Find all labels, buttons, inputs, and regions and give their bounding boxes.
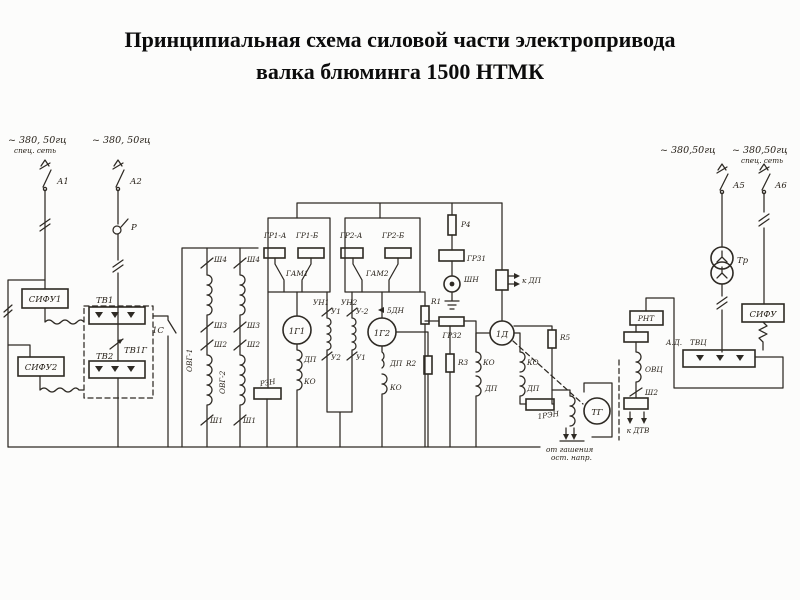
gam2-label: ГАМ2: [365, 269, 389, 278]
breaker-a6-label: А6: [774, 181, 787, 191]
tachogenerator-label: ТГ: [591, 408, 603, 418]
r4-resistor: [448, 215, 456, 235]
rnt-contact-box: [624, 332, 648, 342]
5dn-label: 5ДН: [387, 306, 405, 315]
quench-note-line2: ост. напр.: [551, 453, 592, 462]
motor-1d-label: 1Д: [496, 330, 509, 340]
contact-1s-label: 1С: [152, 326, 164, 336]
u2-tap-label: У-2: [356, 307, 369, 316]
k-dtv-label: к ДТВ: [627, 426, 650, 435]
gate-link-2: [40, 376, 84, 392]
tap-sh3-label: Ш3: [246, 321, 260, 330]
supply-label: ~ 380,50гц: [732, 145, 788, 156]
un1-label: УН1: [313, 298, 329, 307]
breaker-a2-label: А2: [129, 177, 142, 187]
dtv-tap-box: [624, 398, 648, 409]
sifu1-label: СИФУ1: [29, 295, 62, 305]
p-contact-label: Р: [130, 223, 137, 233]
tv1-label: ТВ1: [96, 296, 113, 306]
supply-label: ~ 380, 50гц: [8, 135, 67, 146]
ground-icon: [445, 292, 459, 309]
gr31-label: ГР31: [466, 254, 486, 263]
gr1b-contactor-box: [298, 248, 324, 258]
breaker-a5-icon: [717, 164, 728, 247]
tap-sh2-label: Ш2: [213, 340, 227, 349]
k-dp-box: [496, 270, 508, 290]
dp-winding-label: ДП: [389, 359, 403, 368]
ad-label: А.Д.: [665, 338, 682, 347]
schematic-canvas: ~ 380, 50гц спец. сеть ~ 380, 50гц А1 А2…: [0, 0, 800, 600]
breaker-a1-icon: [40, 160, 51, 289]
gr1b-label: ГР1-Б: [295, 231, 319, 240]
breaker-a6-icon: [759, 164, 770, 304]
r3-label: R3: [457, 358, 468, 367]
breaker-a2-icon: [113, 160, 128, 306]
tap-sh1-label: Ш1: [242, 416, 256, 425]
ovc-winding-label: ОВЦ: [645, 365, 663, 374]
tap-sh2-label: Ш2: [246, 340, 260, 349]
supply-sub-label: спец. сеть: [741, 156, 783, 165]
tvc-label: ТВЦ: [690, 338, 707, 347]
k-dp-label: к ДП: [522, 276, 542, 285]
gr2a-label: ГР2-А: [339, 231, 363, 240]
generator-1g2-label: 1Г2: [374, 329, 390, 339]
ko-winding-label: КО: [482, 358, 495, 367]
transformer-icon: [711, 247, 733, 350]
sifu3-gate-link: [759, 322, 767, 350]
breaker-a1-label: А1: [56, 177, 69, 187]
gr1a-contactor-box: [264, 248, 285, 258]
u1-tap-label: У1: [331, 307, 341, 316]
dp-winding-label: ДП: [526, 384, 540, 393]
r3-resistor: [446, 354, 454, 372]
gr32-label: ГР32: [441, 331, 461, 340]
gr1a-label: ГР1-А: [263, 231, 287, 240]
sifu3-label: СИФУ: [749, 310, 777, 320]
rnt-label: РНТ: [637, 314, 655, 323]
tv-converter-block: ТВ1 ТВ2 ТВ1Г 1С: [84, 296, 176, 447]
u1-bottom-tap-label: У1: [356, 353, 366, 362]
motor-circuit: Р4 ГР31 ШН к ДП R1 ГР32 R3 1Д КО ДП КО Д…: [420, 203, 619, 462]
tv1g-label: ТВ1Г: [124, 346, 147, 356]
gr2b-label: ГР2-Б: [381, 231, 405, 240]
supply-sub-label: спец. сеть: [14, 146, 56, 155]
gam1-label: ГАМ1: [285, 269, 308, 278]
sh2-tap-label: Ш2: [644, 388, 658, 397]
tap-sh3-label: Ш3: [213, 321, 227, 330]
ko-winding-label: КО: [389, 383, 402, 392]
supply-label: ~ 380, 50гц: [92, 135, 151, 146]
un2-label: УН2: [341, 298, 358, 307]
r1-label: R1: [430, 297, 441, 306]
r4-label: Р4: [460, 220, 471, 229]
left-supply-group: ~ 380, 50гц спец. сеть ~ 380, 50гц А1 А2…: [4, 135, 151, 447]
tap-sh4-label: Ш4: [246, 255, 260, 264]
ovg-field-windings: Ш4 Ш3 Ш2 Ш1 Ш4 Ш3 Ш2 Ш1 ОВГ-1 ОВГ-2: [182, 248, 260, 447]
r5-label: R5: [559, 333, 570, 342]
r2-label: R2: [405, 359, 416, 368]
rzn-relay-box: [254, 388, 281, 399]
gate-link-1: [45, 308, 84, 324]
ko-winding-label: КО: [526, 358, 539, 367]
shn-label: ШН: [463, 275, 479, 284]
sifu2-label: СИФУ2: [25, 363, 58, 373]
right-supply-group: ~ 380,50гц ~ 380,50гц спец. сеть А5 А6 Т…: [660, 145, 788, 350]
tap-sh1-label: Ш1: [209, 416, 223, 425]
ko-winding-label: КО: [303, 377, 316, 386]
generator-1g1-label: 1Г1: [289, 327, 305, 337]
gr31-contactor-box: [439, 250, 464, 261]
ovg2-label: ОВГ-2: [218, 370, 227, 394]
scanned-schematic-page: { "title": { "line1": "Принципиальная сх…: [0, 0, 800, 600]
dp-winding-label: ДП: [484, 384, 498, 393]
gr2a-contactor-box: [341, 248, 363, 258]
dp-winding-label: ДП: [303, 355, 317, 364]
gr32-contactor-box: [439, 317, 464, 326]
gr2b-contactor-box: [385, 248, 411, 258]
ren1-label: 1РЭН: [537, 409, 560, 421]
breaker-a5-label: А5: [732, 181, 745, 191]
rzn-label: РЗН: [258, 377, 277, 389]
ren1-relay-box: [526, 399, 554, 410]
transformer-label: Тр: [737, 256, 749, 266]
r5-resistor: [548, 330, 556, 348]
supply-label: ~ 380,50гц: [660, 145, 716, 156]
ovg1-label: ОВГ-1: [185, 349, 194, 372]
u2-bottom-tap-label: У2: [331, 353, 341, 362]
tap-sh4-label: Ш4: [213, 255, 227, 264]
